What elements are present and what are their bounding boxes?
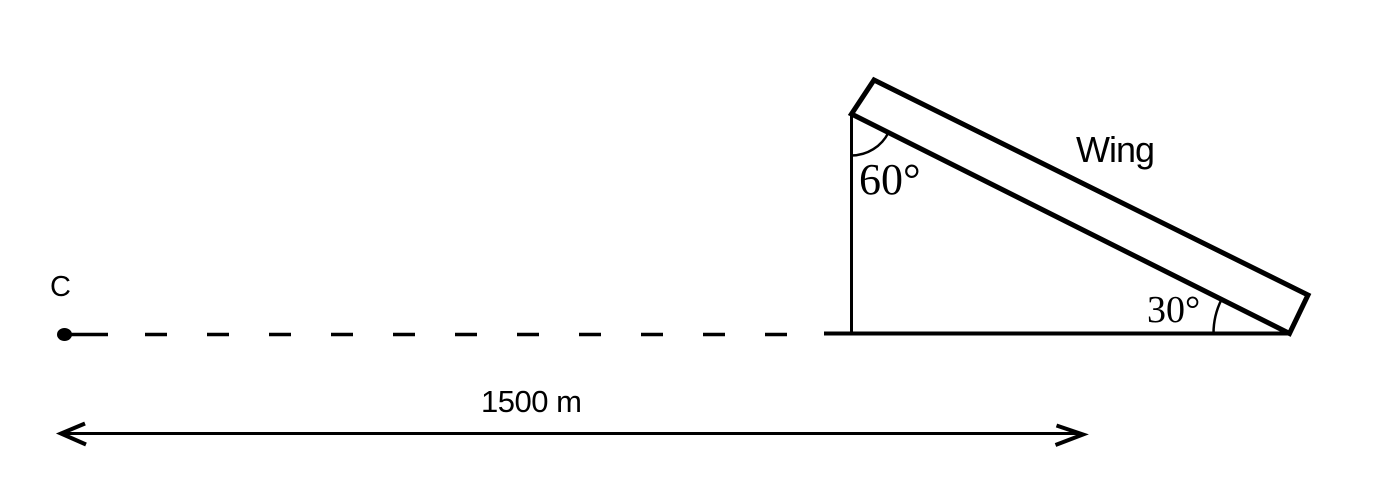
distance-arrow-right-head [1056, 426, 1084, 446]
bottom-angle-arc [1213, 300, 1221, 334]
point-c-label: C [50, 273, 71, 302]
top-angle-label: 60° [859, 158, 921, 202]
geometry-diagram: C 60° Wing 30° 1500 m [0, 0, 1374, 498]
diagram-svg [0, 0, 1374, 498]
top-angle-arc [852, 133, 889, 156]
wing-label: Wing [1076, 132, 1154, 168]
bottom-angle-label: 30° [1147, 291, 1200, 329]
distance-label: 1500 m [481, 386, 581, 417]
wing-shape [852, 80, 1309, 334]
